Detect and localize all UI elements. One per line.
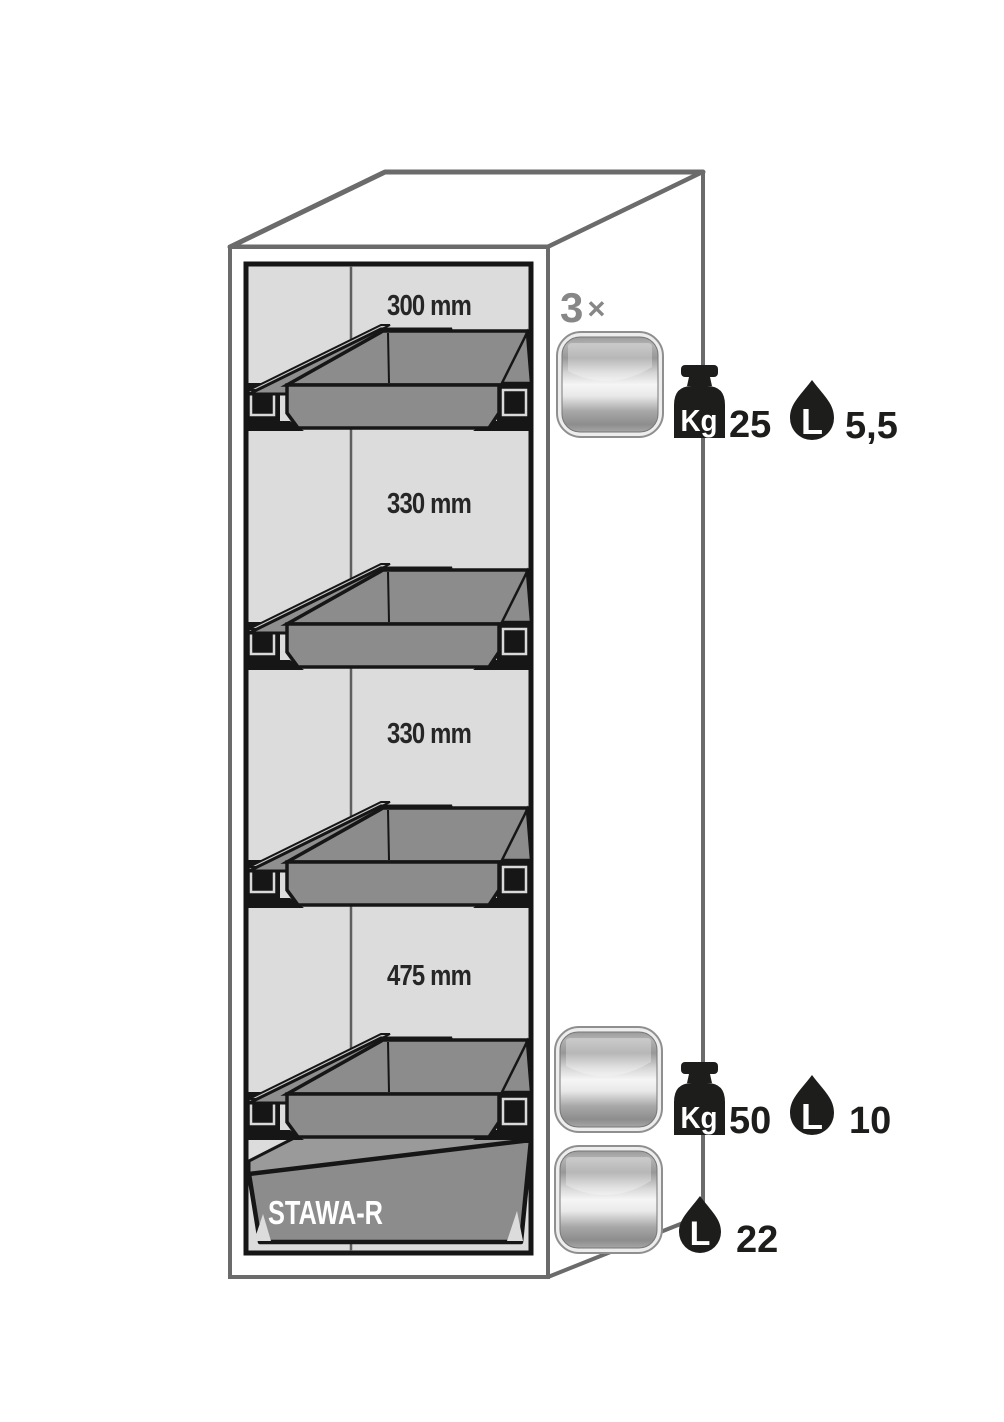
weight-icon-neck <box>687 377 712 386</box>
droplet-icon-top: L <box>790 380 834 442</box>
volume-unit-label-middle: L <box>801 1096 823 1137</box>
volume-unit-label-top: L <box>801 401 823 442</box>
safety-cabinet-diagram: 300 mm 330 mm 330 mm 475 mm STAWA-R 3× K… <box>0 0 1004 1422</box>
volume-value-middle: 10 <box>849 1100 891 1142</box>
weight-unit-label-top: Kg <box>681 403 718 438</box>
steel-tray-icon-2 <box>555 1027 662 1132</box>
weight-icon-neck <box>687 1074 712 1083</box>
weight-icon-handle <box>681 365 718 377</box>
steel-tray-icon-1 <box>557 332 663 437</box>
volume-unit-label-bottom: L <box>690 1215 711 1253</box>
tray-count-number: 3 <box>560 284 583 331</box>
diagram-stage: 300 mm 330 mm 330 mm 475 mm STAWA-R 3× K… <box>0 0 1004 1422</box>
steel-tray-icon-3 <box>555 1146 662 1253</box>
compartment-label-3: 330 mm <box>387 718 471 750</box>
compartment-label-2: 330 mm <box>387 488 471 520</box>
tray-count-label: 3× <box>560 284 605 331</box>
volume-value-bottom: 22 <box>736 1219 778 1261</box>
droplet-icon-middle: L <box>790 1075 834 1137</box>
tray-count-times: × <box>587 291 605 326</box>
weight-value-middle: 50 <box>729 1100 771 1142</box>
weight-unit-label-middle: Kg <box>681 1100 718 1135</box>
compartment-label-4: 475 mm <box>387 960 471 992</box>
weight-icon-handle <box>681 1062 718 1074</box>
volume-value-top: 5,5 <box>845 405 898 447</box>
sump-label: STAWA-R <box>268 1194 383 1231</box>
compartment-label-1: 300 mm <box>387 290 471 322</box>
weight-value-top: 25 <box>729 404 771 446</box>
